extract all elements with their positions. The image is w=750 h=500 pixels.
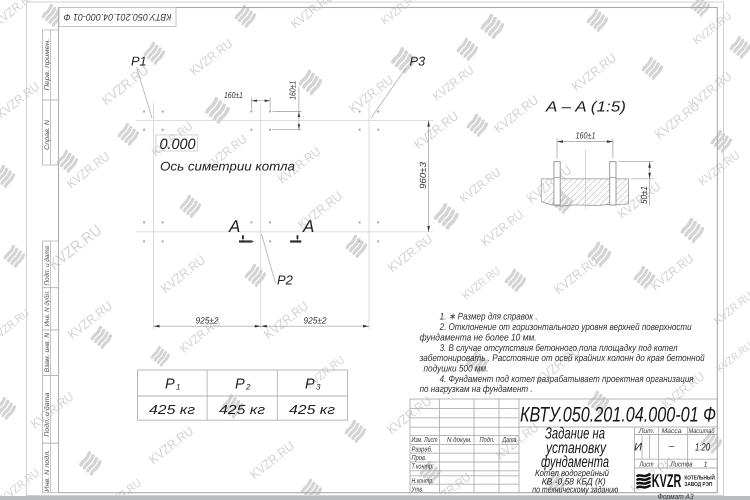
svg-text:KVZR.RU: KVZR.RU	[0, 0, 39, 29]
svg-text:1:20: 1:20	[695, 441, 710, 453]
svg-text:1: 1	[704, 459, 708, 468]
svg-text:Масса: Масса	[661, 428, 681, 435]
svg-text:160±1: 160±1	[224, 90, 243, 100]
svg-text:P3: P3	[410, 54, 426, 69]
svg-text:КОТЕЛЬНЫЙ: КОТЕЛЬНЫЙ	[684, 473, 715, 481]
svg-text:KVZR.RU: KVZR.RU	[652, 98, 702, 142]
svg-text:KVZR.RU: KVZR.RU	[288, 0, 337, 31]
svg-text:Масштаб: Масштаб	[689, 428, 716, 435]
svg-text:Листов: Листов	[670, 460, 693, 469]
svg-text:160±1: 160±1	[576, 131, 596, 141]
svg-text:KVZR.RU: KVZR.RU	[478, 207, 527, 250]
svg-text:KVZR.RU: KVZR.RU	[714, 340, 750, 375]
svg-text:KVZR.RU: KVZR.RU	[691, 10, 734, 47]
svg-text:A – A (1:5): A – A (1:5)	[545, 100, 626, 116]
svg-text:KVZR.RU: KVZR.RU	[46, 222, 105, 274]
svg-text:425 кг: 425 кг	[289, 402, 336, 417]
svg-text:ЗАВОД РЭП: ЗАВОД РЭП	[684, 481, 712, 488]
svg-text:KVZR.RU: KVZR.RU	[187, 36, 236, 79]
svg-text:Подп.: Подп.	[480, 435, 495, 444]
svg-text:Лист: Лист	[639, 460, 654, 469]
svg-text:Справ. N: Справ. N	[44, 120, 51, 150]
svg-text:KVZR.RU: KVZR.RU	[158, 252, 208, 296]
svg-text:1: 1	[176, 383, 180, 392]
svg-text:KVZR.RU: KVZR.RU	[411, 108, 461, 152]
svg-text:2. Отклонение от горизонтально: 2. Отклонение от горизонтального уровня …	[439, 322, 692, 333]
svg-text:P: P	[305, 377, 315, 393]
svg-text:Дата: Дата	[502, 435, 517, 444]
svg-text:KVZR.RU: KVZR.RU	[98, 62, 151, 108]
svg-text:KVZR.RU: KVZR.RU	[648, 251, 697, 294]
svg-text:960±3: 960±3	[418, 162, 428, 189]
svg-text:KVZR.RU: KVZR.RU	[385, 231, 435, 275]
svg-text:KVZR.RU: KVZR.RU	[146, 423, 196, 467]
svg-text:A: A	[302, 217, 314, 236]
svg-text:KVZR.RU: KVZR.RU	[384, 393, 434, 437]
svg-text:KVZR: KVZR	[652, 470, 682, 491]
svg-text:50±1: 50±1	[639, 186, 649, 204]
svg-text:KVZR.RU: KVZR.RU	[460, 265, 503, 302]
svg-text:И: И	[634, 442, 642, 454]
svg-text:KVZR.RU: KVZR.RU	[0, 79, 42, 122]
svg-text:Перв. примен.: Перв. примен.	[44, 38, 51, 90]
svg-text:КВТУ.050.201.04.000-01 Ф: КВТУ.050.201.04.000-01 Ф	[63, 11, 171, 22]
svg-text:фундамента не более 10 мм.: фундамента не более 10 мм.	[420, 332, 537, 343]
svg-text:Лит.: Лит.	[638, 428, 655, 435]
svg-text:Ось симетрии котла: Ось симетрии котла	[160, 160, 295, 174]
svg-text:P1: P1	[131, 54, 147, 69]
svg-text:P: P	[235, 377, 245, 393]
svg-text:KVZR.RU: KVZR.RU	[491, 92, 541, 136]
svg-text:KVZR.RU: KVZR.RU	[551, 253, 601, 297]
svg-text:2: 2	[245, 383, 251, 392]
svg-text:1. ∗ Размер для справок .: 1. ∗ Размер для справок .	[440, 312, 538, 323]
svg-text:Разраб.: Разраб.	[412, 444, 433, 453]
svg-text:P2: P2	[277, 273, 294, 288]
svg-text:3. В случае отсутствия бетонно: 3. В случае отсутствия бетонного пола пл…	[440, 343, 678, 354]
svg-text:A: A	[228, 217, 240, 236]
svg-text:425 кг: 425 кг	[149, 402, 196, 417]
svg-text:160±1: 160±1	[288, 81, 298, 100]
svg-text:KVZR.RU: KVZR.RU	[28, 389, 77, 432]
svg-text:KVZR.RU: KVZR.RU	[430, 63, 476, 104]
svg-text:KVZR.RU: KVZR.RU	[247, 438, 297, 482]
svg-text:Утв.: Утв.	[411, 485, 424, 494]
svg-text:0.000: 0.000	[160, 136, 197, 153]
svg-text:KVZR.RU: KVZR.RU	[457, 165, 503, 206]
svg-text:925±2: 925±2	[304, 316, 327, 326]
svg-text:KVZR.RU: KVZR.RU	[346, 72, 396, 116]
svg-text:P: P	[165, 377, 175, 393]
svg-text:КВТУ.050.201.04.000-01 Ф: КВТУ.050.201.04.000-01 Ф	[520, 404, 716, 427]
svg-text:3: 3	[316, 383, 321, 392]
svg-text:Изм. Лист: Изм. Лист	[412, 435, 438, 444]
svg-text:Подп. и дата: Подп. и дата	[44, 392, 51, 436]
svg-text:Взам. инв. N: Взам. инв. N	[44, 333, 51, 373]
svg-text:KVZR.RU: KVZR.RU	[712, 290, 750, 327]
svg-text:KVZR.RU: KVZR.RU	[696, 148, 742, 189]
svg-text:KVZR.RU: KVZR.RU	[569, 50, 619, 94]
svg-text:425 кг: 425 кг	[219, 402, 266, 417]
svg-text:925±2: 925±2	[196, 316, 219, 326]
svg-text:Подп. и дата: Подп. и дата	[44, 246, 51, 286]
svg-text:N докум.: N докум.	[447, 435, 472, 444]
svg-text:по нагрузкам на фундамент .: по нагрузкам на фундамент .	[420, 384, 533, 395]
svg-text:KVZR.RU: KVZR.RU	[379, 0, 422, 27]
svg-text:KVZR.RU: KVZR.RU	[0, 307, 32, 344]
svg-text:Формат А3: Формат А3	[658, 492, 695, 500]
svg-text:–: –	[668, 441, 675, 452]
svg-text:Инв. N дубл.: Инв. N дубл.	[44, 290, 51, 326]
svg-text:Инв. N подл.: Инв. N подл.	[44, 450, 51, 492]
svg-text:по техническому заданию: по техническому заданию	[532, 484, 618, 494]
svg-text:Т.контр.: Т.контр.	[412, 462, 434, 471]
